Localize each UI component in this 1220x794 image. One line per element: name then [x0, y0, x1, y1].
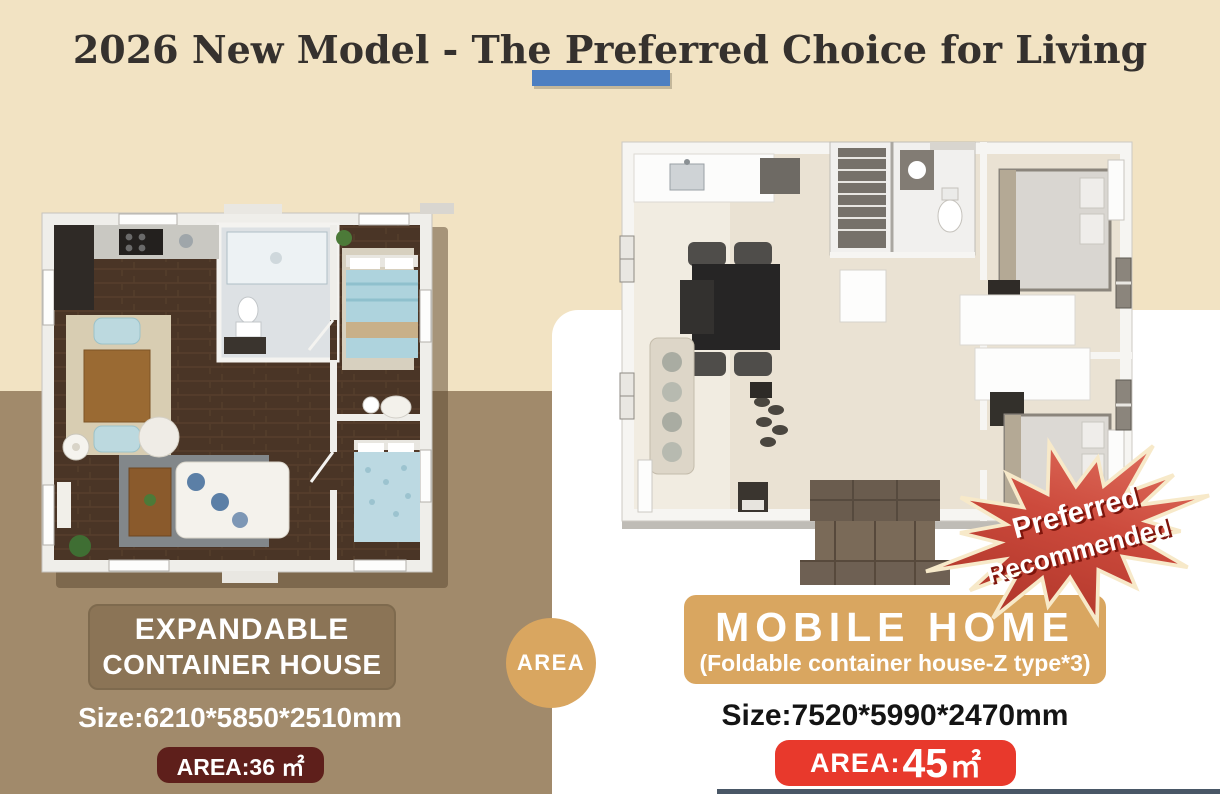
right-product-size: Size:7520*5990*2470mm — [674, 699, 1116, 733]
right-area-prefix: AREA: — [810, 748, 901, 779]
promo-page: 2026 New Model - The Preferred Choice fo… — [0, 0, 1220, 794]
expandable-house-floorplan — [24, 200, 476, 600]
page-title: 2026 New Model - The Preferred Choice fo… — [0, 27, 1220, 72]
right-product-subtitle: (Foldable container house-Z type*3) — [699, 650, 1090, 676]
left-product-name-line2: CONTAINER HOUSE — [102, 648, 381, 682]
right-area-badge: AREA: 45 ㎡ — [775, 740, 1016, 786]
left-area-badge: AREA:36 ㎡ — [157, 747, 324, 783]
area-divider-circle: AREA — [506, 618, 596, 708]
recommended-ribbon: Preferred Preferred Recommended Recommen… — [918, 433, 1220, 631]
left-product-name-box: EXPANDABLE CONTAINER HOUSE — [88, 604, 396, 690]
title-accent-bar — [532, 70, 670, 86]
left-product-name-line1: EXPANDABLE — [135, 612, 349, 648]
right-area-value: 45 — [902, 743, 948, 784]
right-area-unit: ㎡ — [950, 741, 981, 786]
left-product-size: Size:6210*5850*2510mm — [30, 702, 450, 734]
bottom-section-divider — [717, 789, 1220, 794]
